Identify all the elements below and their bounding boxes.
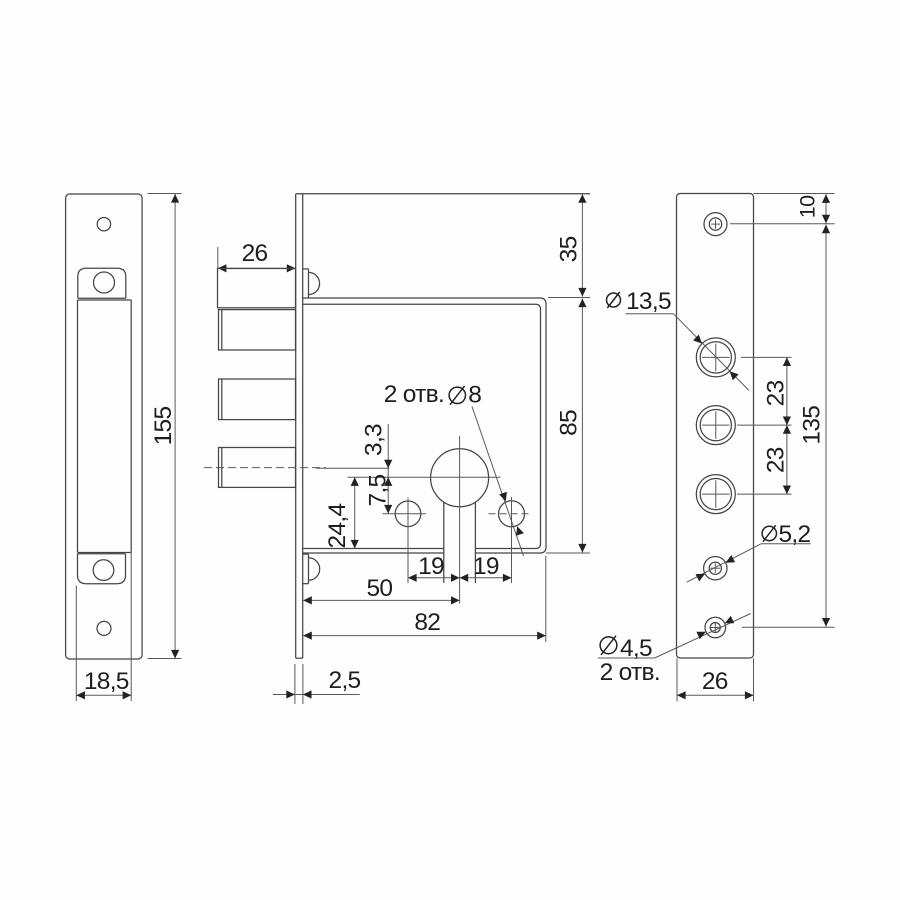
svg-text:8: 8 [468, 382, 481, 409]
svg-text:7,5: 7,5 [365, 474, 392, 506]
svg-text:35: 35 [556, 236, 583, 262]
svg-text:10: 10 [796, 195, 820, 218]
svg-text:13,5: 13,5 [626, 288, 671, 315]
svg-text:135: 135 [799, 406, 826, 445]
svg-text:50: 50 [366, 575, 392, 602]
svg-text:26: 26 [242, 240, 268, 267]
svg-text:3,3: 3,3 [361, 424, 388, 456]
svg-text:24,4: 24,4 [324, 503, 351, 548]
svg-text:19: 19 [473, 553, 499, 580]
svg-text:85: 85 [556, 410, 583, 436]
svg-text:23: 23 [763, 447, 790, 473]
svg-text:18,5: 18,5 [84, 668, 129, 695]
svg-text:2 отв.: 2 отв. [384, 381, 444, 408]
svg-text:82: 82 [414, 609, 440, 636]
svg-text:2 отв.: 2 отв. [600, 659, 660, 686]
svg-text:155: 155 [150, 407, 177, 446]
svg-text:23: 23 [763, 380, 790, 406]
svg-text:19: 19 [418, 553, 444, 580]
svg-text:26: 26 [702, 668, 728, 695]
svg-text:2,5: 2,5 [329, 667, 361, 694]
